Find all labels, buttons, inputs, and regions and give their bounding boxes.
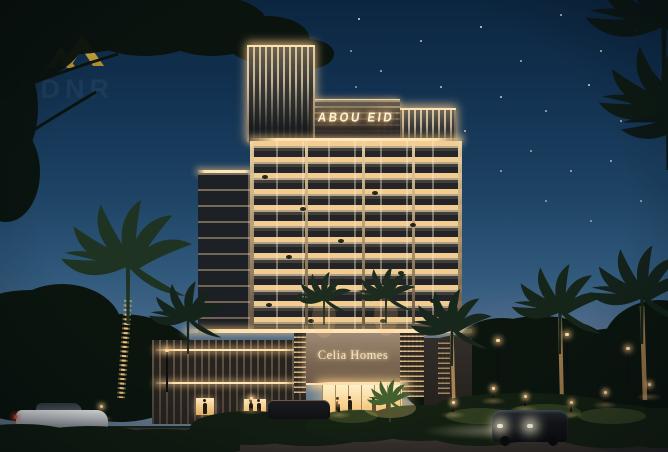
lamp-light [565,333,569,336]
foreground-vegetation [0,0,668,452]
wheel [500,436,510,446]
lamp-light [165,349,169,352]
bollard-glow [338,401,341,404]
bollard-light [570,404,572,412]
lamp-light [496,339,500,342]
light-pool [480,397,506,405]
bollard-glow [250,397,253,400]
headlight [527,424,533,428]
terrace-palms [294,266,415,338]
hedge-front-left [0,420,240,452]
light-pool [636,393,662,401]
palm-trees-right [409,39,668,408]
bollard-light [492,390,494,398]
headlight [497,424,503,428]
bollard-glow [100,405,103,408]
wheel [548,436,558,446]
bollard-glow [604,391,607,394]
bollard-glow [570,401,573,404]
lamp-light [626,347,630,350]
bollard-light [452,404,454,412]
bollard-glow [524,395,527,398]
bollard-light [648,386,650,394]
lamp-post [166,352,168,392]
lamp-post [566,336,568,378]
taillight [14,415,17,419]
bollard-glow [648,383,651,386]
palm-tree-left-small [148,280,226,354]
bollard-glow [452,401,455,404]
bollard-light [604,394,606,402]
bollard-light [524,398,526,406]
bollard-glow [492,387,495,390]
light-pool [440,411,466,419]
lamp-post [497,342,499,386]
light-pool [238,407,264,415]
lamp-post [627,350,629,386]
bollard-light [250,400,252,408]
night-render-photo: ADNR [0,0,668,452]
car-at-entrance [268,400,330,419]
bollard-light [338,404,340,412]
light-pool [592,401,618,409]
